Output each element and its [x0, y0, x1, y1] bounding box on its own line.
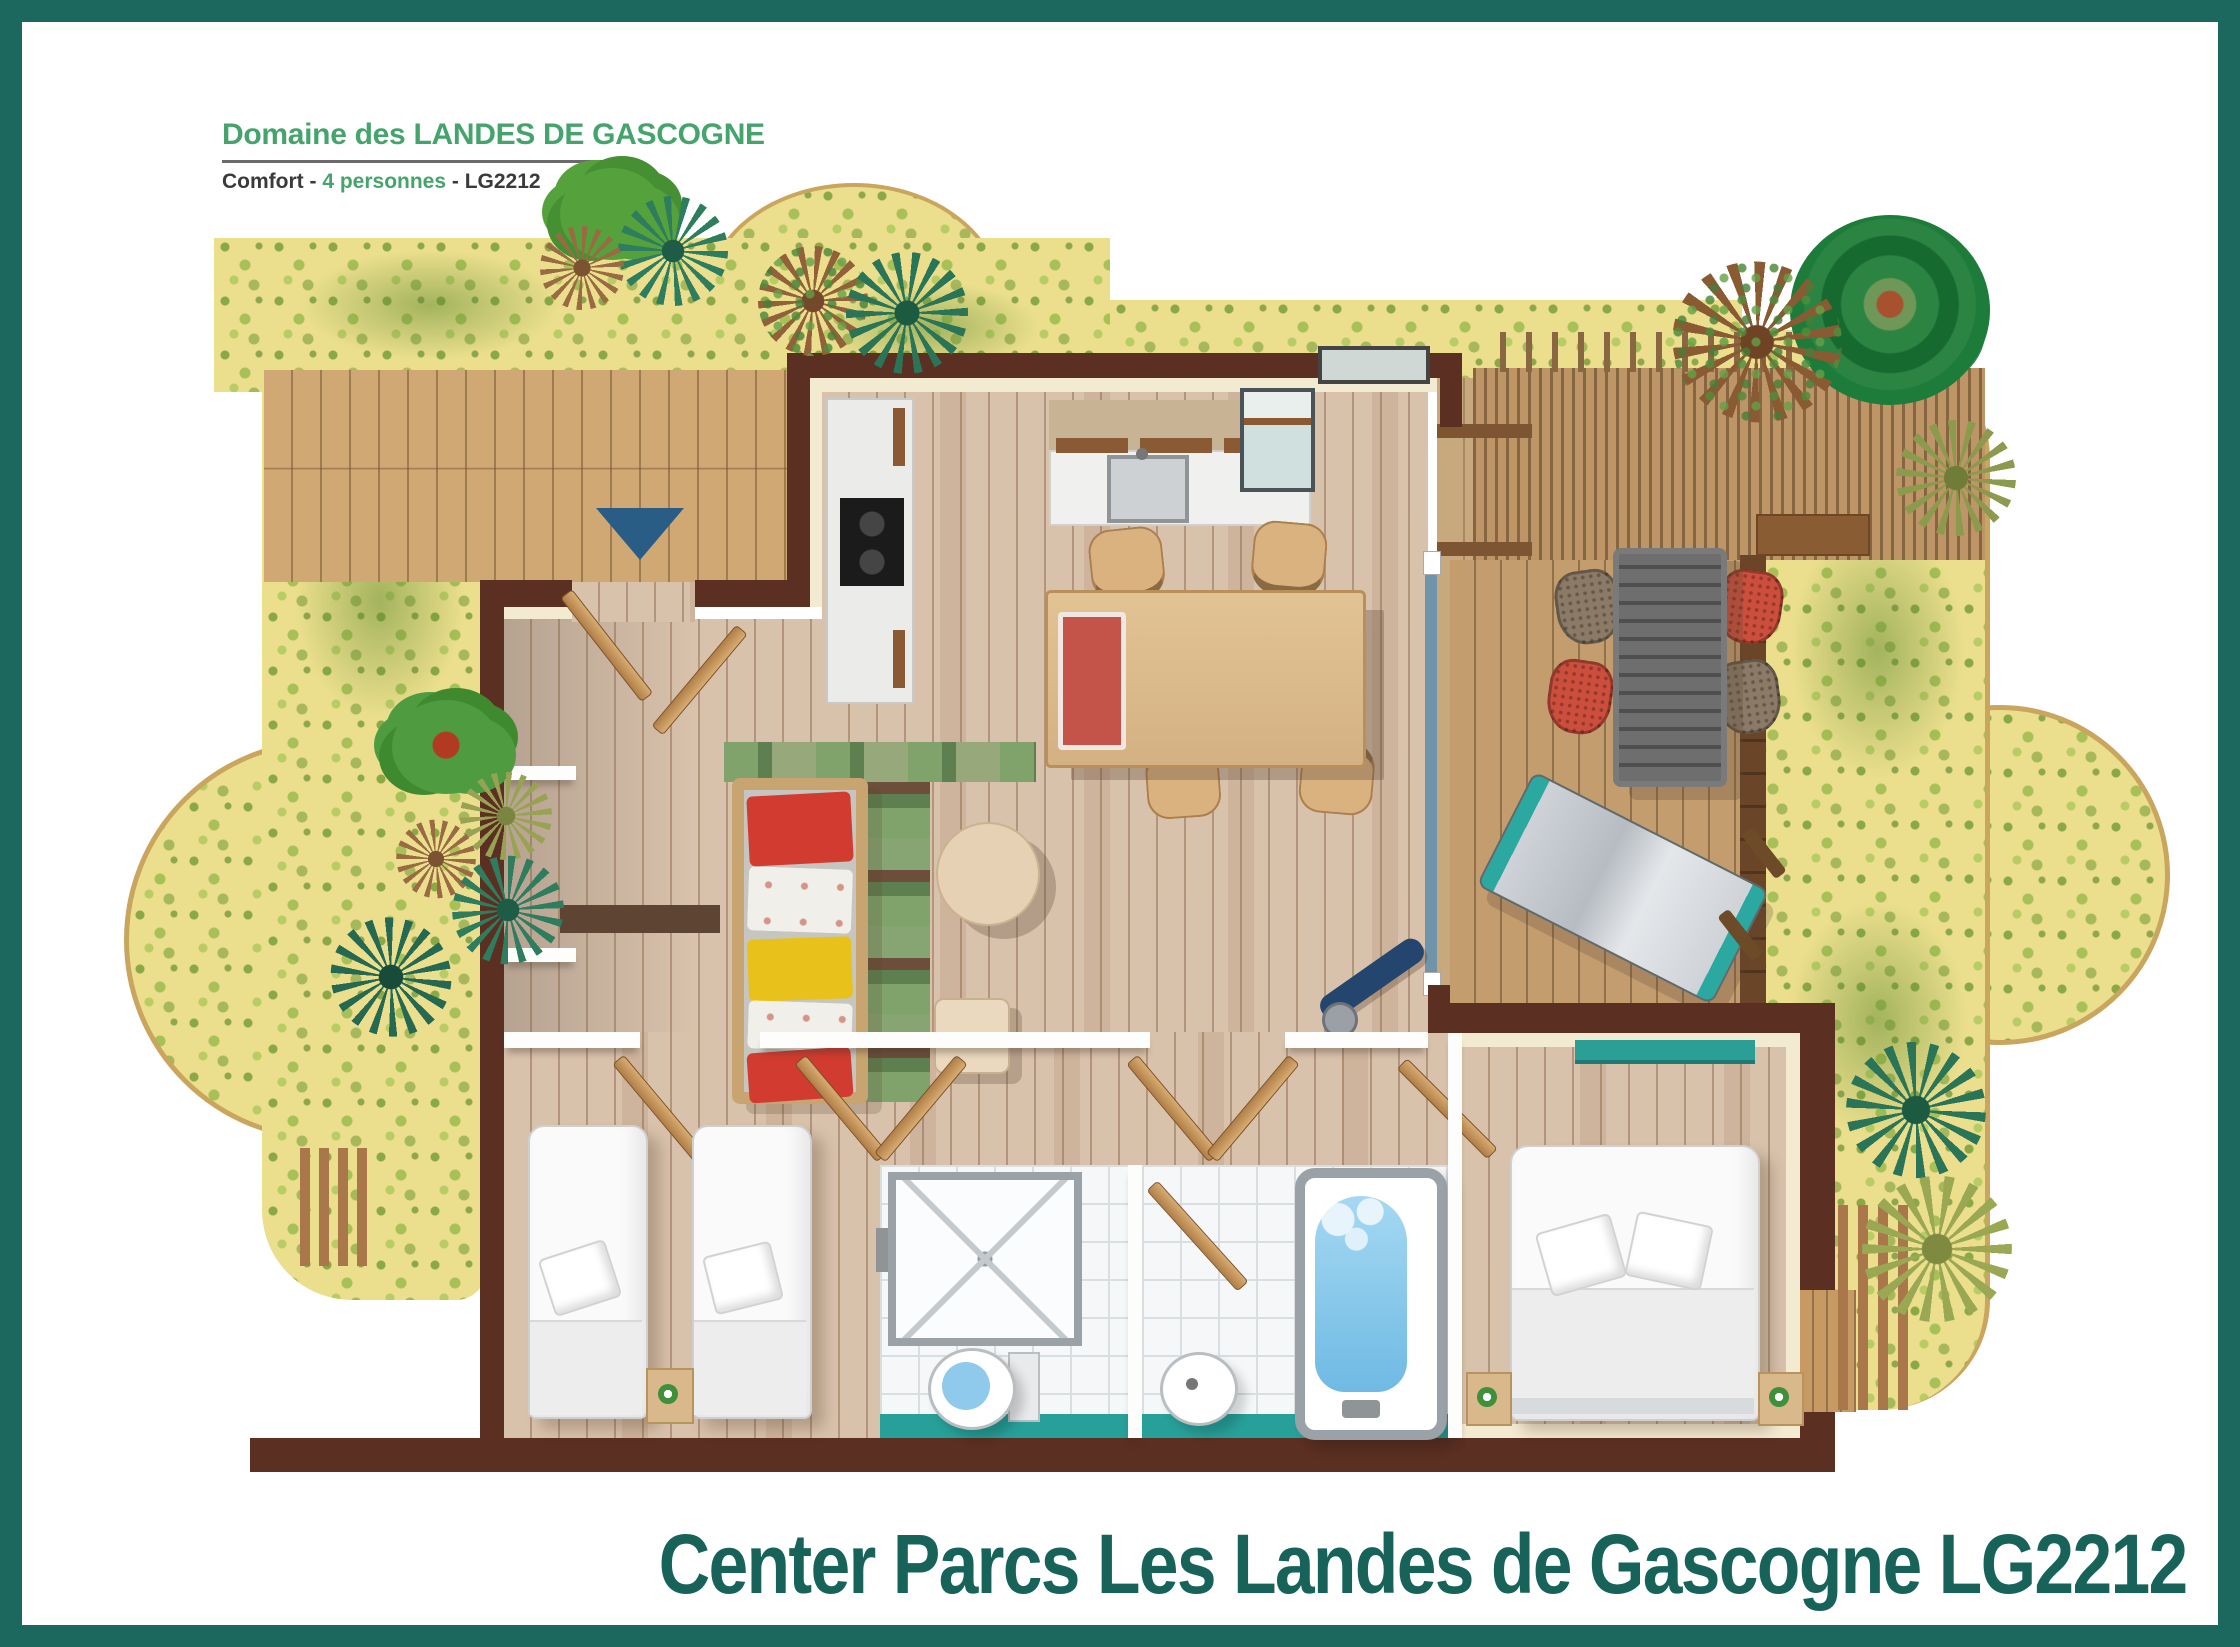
sliding-glass-door [1425, 557, 1437, 985]
subtitle-separator: - [304, 170, 323, 193]
trim-bedroom2-east [1786, 1047, 1800, 1424]
cottage-type: Comfort [222, 170, 304, 193]
kitchen-shelf [1056, 438, 1128, 453]
cottage-subtitle: Comfort - 4 personnes - LG2212 [222, 170, 765, 194]
resort-title: Domaine des LANDES DE GASCOGNE [222, 118, 765, 152]
garden-fence-left [300, 1148, 370, 1266]
sofa-cushion-white [747, 866, 853, 934]
bedroom2-bench [1575, 1040, 1755, 1064]
patio-table [1613, 548, 1727, 787]
cottage-code: LG2212 [465, 170, 541, 193]
tree-dry-palm [540, 226, 624, 310]
rug-top [724, 742, 1036, 782]
rug-side [858, 782, 930, 1102]
kitchen-window [1318, 346, 1430, 384]
floorplan-page: Domaine des LANDES DE GASCOGNE Comfort -… [0, 0, 2240, 1647]
wall-hall-north-a [480, 580, 572, 607]
wall-hall-north-b [695, 580, 790, 607]
living-south-wall [1285, 1032, 1428, 1048]
toilet-water [942, 1362, 990, 1410]
kitchen-shelf [1140, 438, 1212, 453]
bed-footer [694, 1320, 806, 1415]
double-bed-duvet [1512, 1288, 1754, 1404]
dining-chair [1249, 519, 1329, 599]
sink-faucet [1136, 448, 1148, 460]
double-bed-footboard [1512, 1398, 1754, 1414]
nightstand-lamp [1769, 1387, 1789, 1407]
living-south-wall [504, 1032, 640, 1048]
living-south-wall [760, 1032, 1150, 1048]
kitchen-sink [1107, 455, 1189, 523]
wall-south [250, 1438, 1835, 1472]
bath-faucet [1342, 1400, 1380, 1418]
sofa-cushion-yellow [747, 936, 853, 1002]
table-tray [1058, 612, 1126, 750]
cottage-capacity: 4 personnes [322, 170, 446, 193]
nightstand-lamp [658, 1384, 678, 1404]
bathroom-divider-wall [1128, 1165, 1142, 1438]
hall-console [560, 905, 720, 933]
subtitle-separator: - [446, 170, 465, 193]
bed-footer [530, 1320, 642, 1415]
wall-bedroom2-north [1450, 1003, 1835, 1033]
washbasin [1160, 1352, 1238, 1426]
wall-east-stub [1440, 353, 1462, 427]
shower-tray [888, 1172, 1082, 1346]
side-table-round [936, 822, 1040, 926]
kitchen-tall-cabinet [1240, 388, 1315, 492]
page-caption: Center Parcs Les Landes de Gascogne LG22… [658, 1516, 2186, 1613]
door-jamb [1423, 551, 1441, 575]
basin-drain [1186, 1378, 1198, 1390]
plan-header: Domaine des LANDES DE GASCOGNE Comfort -… [222, 118, 765, 194]
shower-room-teal-strip [880, 1414, 1128, 1438]
nightstand-lamp [1477, 1387, 1497, 1407]
shower-faucet [876, 1228, 888, 1272]
sofa-cushion-red [746, 791, 854, 866]
front-deck [264, 370, 787, 582]
wall-kitchen-west [787, 353, 810, 607]
garden-bench [1756, 514, 1870, 556]
pergola-beam [1437, 542, 1532, 556]
bath-water [1315, 1196, 1407, 1392]
kitchen-unit-handle [893, 408, 905, 466]
tree-branch-leaves [1672, 262, 1842, 422]
cooktop [840, 498, 904, 586]
wall-east-lower-stub [1428, 985, 1450, 1033]
kitchen-unit-handle [893, 630, 905, 688]
bedroom2-west-wall [1448, 1033, 1462, 1438]
entrance-marker-triangle [596, 508, 684, 560]
trim-kitchen-west [810, 380, 822, 607]
grass-clump [300, 250, 560, 360]
header-divider [222, 160, 614, 163]
